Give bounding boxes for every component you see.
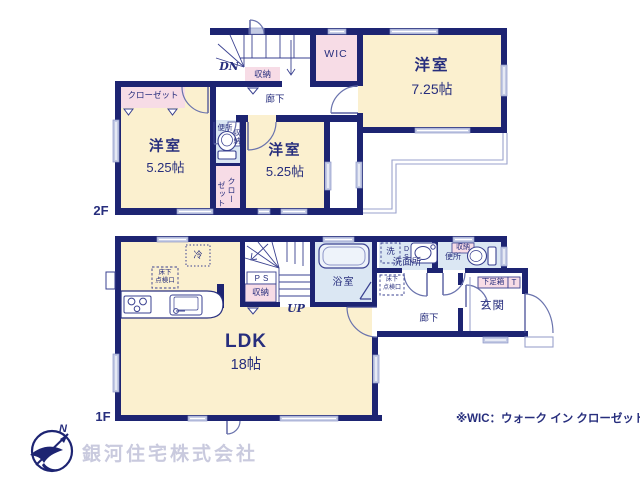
closet-center-label-a: クロー [227,170,236,210]
room-label-2f-west: 洋室 [121,139,210,156]
hallway-1f-label: 廊下 [404,314,454,325]
room-label-2f-center: 洋室 [246,143,324,160]
room-size-2f-west: 5.25帖 [121,161,210,176]
floor-label-2f: 2F [90,204,112,219]
stairs-up-label: UP [282,303,310,316]
ldk-label: LDK [186,331,306,353]
room-size-2f-center: 5.25帖 [246,165,324,180]
fridge-label: 冷 [186,250,210,260]
genkan-label: 玄関 [463,300,522,313]
shoebox-t-label: T [508,278,520,287]
hatch-kitchen-line1: 床下 [159,269,172,276]
shoebox-label: 下足箱 [478,278,508,287]
washer-label: 洗 [382,247,399,257]
hatch-hall-line2: 点検口 [383,285,401,291]
stairs-down-label: DN [216,61,242,74]
ldk-size-label: 18帖 [186,357,306,374]
hatch-kitchen-label: 床下 点検口 [152,269,178,285]
toilet-1f-label: 便所 [440,252,466,261]
toilet-storage-2f-label: 収納 [228,124,240,150]
hatch-hall-line1: 床下 [386,277,398,283]
hatch-hall-label: 床下 点検口 [380,277,404,292]
ps-label: PS [247,274,276,283]
room-size-2f-east: 7.25帖 [363,81,501,97]
wic-note: ※WIC：ウォーク イン クローゼット [456,413,636,426]
hallway-2f-label: 廊下 [258,95,292,106]
room-label-2f-east: 洋室 [363,57,501,75]
washroom-label: 洗面所 [380,258,434,269]
compass-logo [30,431,72,471]
hatch-kitchen-line2: 点検口 [155,277,175,284]
stair-storage-2f-label: 収納 [245,70,280,80]
wic-label: WIC [314,48,358,60]
floor-plan: 2F 1F クローゼット 洋室 5.25帖 便所 収納 クロー ゼット 洋室 5… [0,0,640,480]
bathtub-icon [319,244,369,268]
closet-west-label: クローゼット [121,91,185,101]
stove-icon [124,296,151,313]
bath-label: 浴室 [313,277,374,289]
floor-plan-drawing [0,0,640,480]
floor-label-1f: 1F [92,410,114,425]
closet-center-label-b: ゼット [217,174,226,214]
compass-north-label: N [56,423,70,436]
stair-storage-1f-label: 収納 [245,288,276,298]
kitchen-sink-icon [170,295,202,315]
toilet-storage-1f-label: 収納 [452,244,474,252]
